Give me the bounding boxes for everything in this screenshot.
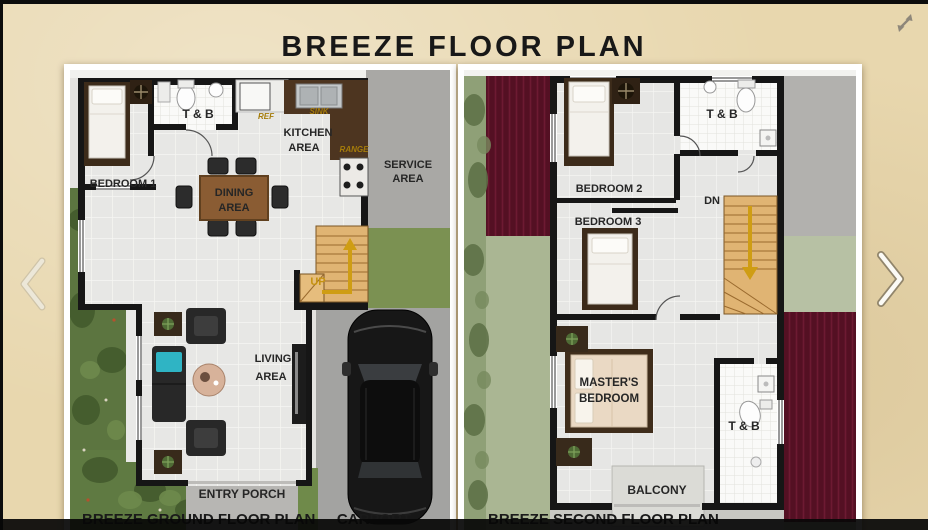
aircon-unit	[130, 80, 152, 104]
chevron-left-icon	[16, 256, 52, 312]
label-service-1: SERVICE	[384, 159, 432, 171]
expand-fullscreen-button[interactable]	[893, 11, 917, 35]
label-kitchen-1: KITCHEN	[284, 127, 333, 139]
stairs-down	[724, 196, 777, 314]
label-bedroom2: BEDROOM 2	[576, 183, 643, 195]
label-ref: REF	[258, 112, 275, 121]
second-floor-plan: BEDROOM 2 BEDROOM 3 T & B DN MASTER'S BE…	[464, 70, 856, 530]
label-service-2: AREA	[392, 173, 423, 185]
label-kitchen-2: AREA	[288, 142, 319, 154]
carousel-prev-button[interactable]	[16, 256, 52, 312]
label-tb-lower: T & B	[728, 419, 760, 433]
label-entry-porch: ENTRY PORCH	[199, 487, 286, 501]
bedroom2-bed	[564, 78, 614, 166]
bottom-overlay-bar	[0, 519, 928, 530]
second-floor-slide[interactable]: BEDROOM 2 BEDROOM 3 T & B DN MASTER'S BE…	[458, 64, 862, 530]
label-range: RANGE	[340, 145, 370, 154]
label-tb-upper: T & B	[706, 107, 738, 121]
left-border	[0, 0, 3, 530]
aircon-unit	[612, 78, 640, 104]
bedroom3-bed	[582, 228, 638, 310]
label-master-2: BEDROOM	[579, 393, 639, 405]
ground-floor-plan: BEDROOM 1 T & B KITCHEN AREA SERVICE ARE…	[70, 70, 450, 530]
diagonal-expand-icon	[893, 11, 917, 35]
label-dining-1: DINING	[215, 187, 254, 199]
floor-plan-viewer: BREEZE FLOOR PLAN	[0, 0, 928, 530]
page-title: BREEZE FLOOR PLAN	[0, 31, 928, 64]
label-dining-2: AREA	[218, 202, 249, 214]
label-tb-ground: T & B	[182, 107, 214, 121]
chevron-right-icon	[872, 250, 908, 308]
label-bedroom1: BEDROOM 1	[90, 178, 157, 190]
label-dn: DN	[704, 195, 720, 207]
label-up: UP	[310, 276, 325, 288]
label-living-1: LIVING	[255, 353, 292, 365]
car-top-view	[342, 310, 438, 524]
bedroom1-bed	[84, 82, 130, 166]
label-bedroom3: BEDROOM 3	[575, 216, 642, 228]
label-sink: SINK	[309, 107, 329, 116]
label-balcony: BALCONY	[627, 483, 686, 497]
label-living-2: AREA	[255, 371, 286, 383]
ground-floor-slide[interactable]: BEDROOM 1 T & B KITCHEN AREA SERVICE ARE…	[64, 64, 456, 530]
label-master-1: MASTER'S	[580, 377, 639, 389]
top-border	[0, 0, 928, 4]
master-bed	[565, 349, 653, 433]
carousel-next-button[interactable]	[872, 250, 908, 308]
